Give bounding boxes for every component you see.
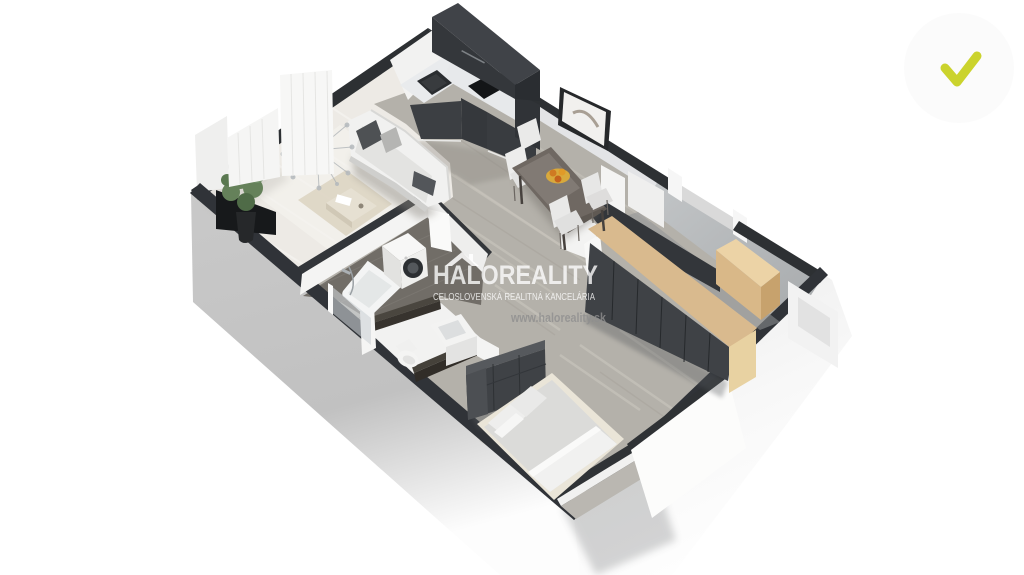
svg-text:HALOREALITY: HALOREALITY: [433, 260, 598, 290]
svg-text:CELOSLOVENSKÁ REALITNÁ KANCELÁ: CELOSLOVENSKÁ REALITNÁ KANCELÁRIA: [433, 290, 595, 303]
svg-text:www.haloreality.sk: www.haloreality.sk: [510, 310, 606, 325]
